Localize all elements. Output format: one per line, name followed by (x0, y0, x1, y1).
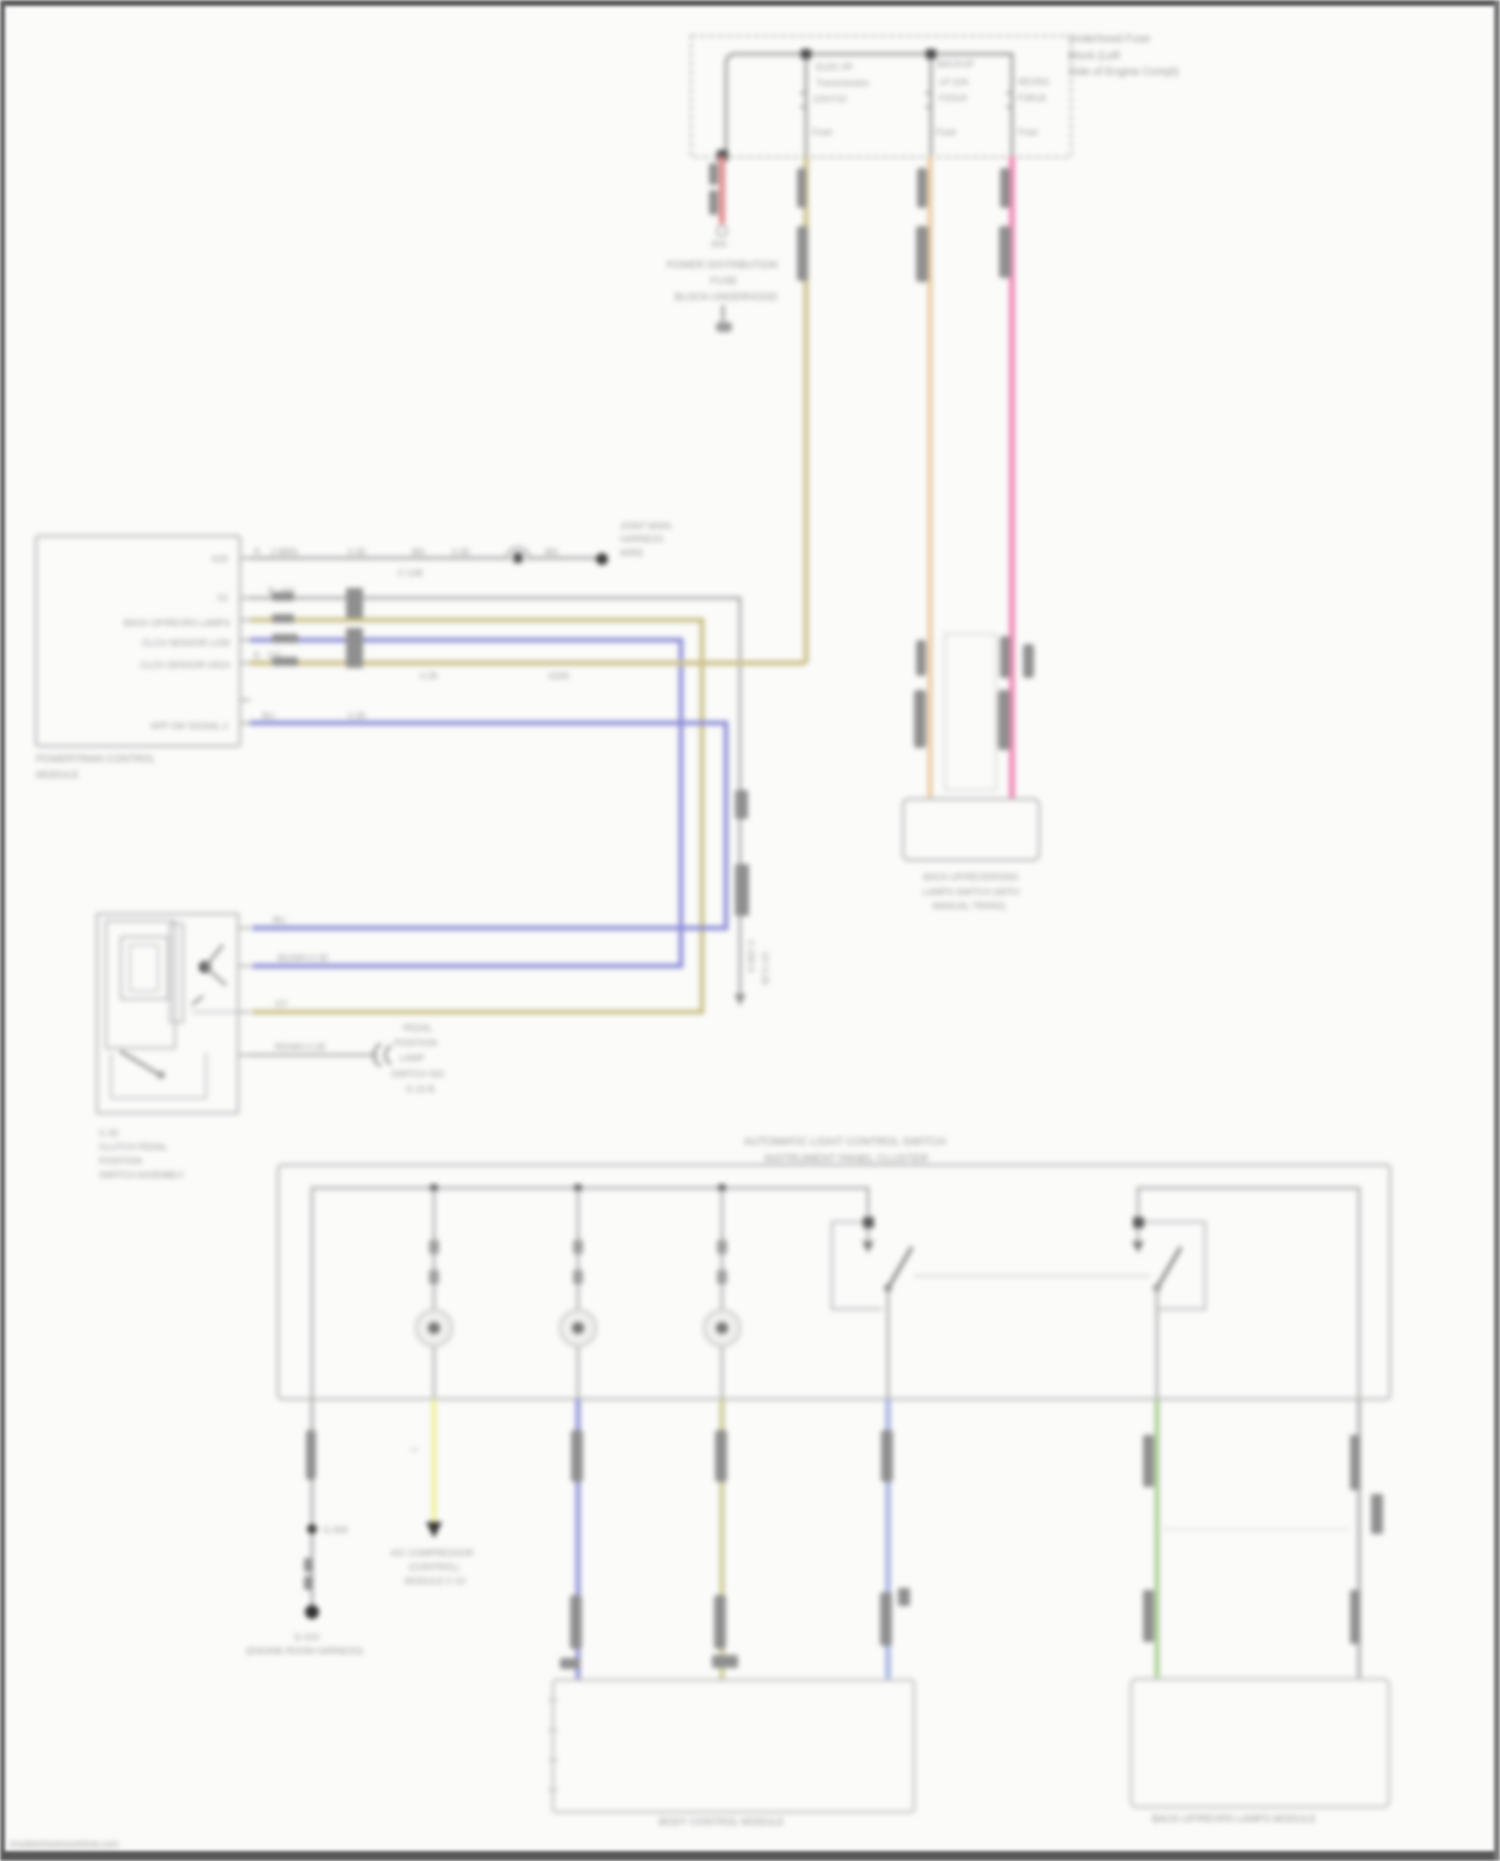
svg-text:troubleshootmyvehicle.com: troubleshootmyvehicle.com (10, 1839, 119, 1849)
svg-text:F30UA: F30UA (1018, 93, 1046, 103)
svg-text:POSITION: POSITION (99, 1156, 142, 1166)
svg-text:Block (Left: Block (Left (1068, 50, 1120, 62)
svg-text:LP 10A: LP 10A (939, 77, 968, 87)
svg-text:S205: S205 (548, 671, 569, 681)
svg-text:JOINT MAIN: JOINT MAIN (620, 521, 671, 531)
svg-text:MODULE C-10: MODULE C-10 (405, 1576, 466, 1586)
svg-text:LAMPS SWITCH (WITH: LAMPS SWITCH (WITH (923, 887, 1020, 897)
svg-text:Transmission: Transmission (816, 78, 869, 88)
svg-text:POWER DISTRIBUTION: POWER DISTRIBUTION (666, 260, 777, 271)
svg-text:BACKUP: BACKUP (937, 59, 974, 69)
svg-text:LAMP: LAMP (400, 1053, 425, 1063)
svg-text:INSTRUMENT PANEL CLUSTER: INSTRUMENT PANEL CLUSTER (764, 1153, 928, 1165)
svg-text:(ENGINE ROOM HARNESS): (ENGINE ROOM HARNESS) (246, 1646, 363, 1656)
svg-text:C-108: C-108 (398, 568, 423, 578)
svg-text:0.35: 0.35 (420, 671, 438, 681)
svg-text:FUSE: FUSE (711, 276, 738, 287)
svg-text:K20: K20 (212, 554, 228, 564)
svg-text:POWERTRAIN CONTROL: POWERTRAIN CONTROL (36, 754, 156, 765)
svg-text:CLCH SENSOR LOW: CLCH SENSOR LOW (142, 638, 231, 648)
svg-text:SWITCH SIG: SWITCH SIG (391, 1069, 445, 1079)
svg-text:C-200 A: C-200 A (746, 940, 756, 973)
svg-text:MODULE: MODULE (36, 770, 79, 781)
svg-text:POSITION: POSITION (394, 1038, 437, 1048)
svg-text:SWITCH ASSEMBLY: SWITCH ASSEMBLY (99, 1170, 184, 1180)
svg-text:F22UA: F22UA (939, 93, 967, 103)
svg-text:0.35: 0.35 (452, 547, 470, 557)
svg-text:AUTOMATIC LIGHT CONTROL SWITCH: AUTOMATIC LIGHT CONTROL SWITCH (744, 1136, 946, 1148)
svg-text:G-103: G-103 (294, 1632, 319, 1642)
svg-text:Fuse: Fuse (1018, 127, 1038, 137)
svg-text:BACK-UP/REVRS LAMPS MODULE: BACK-UP/REVRS LAMPS MODULE (1152, 1814, 1316, 1825)
svg-text:A: A (254, 546, 260, 556)
svg-text:REVRS: REVRS (1018, 77, 1049, 87)
svg-text:HARNESS: HARNESS (620, 534, 664, 544)
svg-text:(CONTROL): (CONTROL) (409, 1562, 459, 1572)
svg-text:30A: 30A (711, 239, 727, 249)
svg-text:Fuse: Fuse (812, 127, 832, 137)
svg-text:WIRE: WIRE (620, 548, 644, 558)
svg-text:Underhood Fuse: Underhood Fuse (1068, 33, 1150, 45)
svg-text:BU/WH 0.35: BU/WH 0.35 (278, 953, 328, 963)
svg-text:0.35: 0.35 (348, 711, 366, 721)
svg-text:GY: GY (275, 999, 288, 1009)
svg-text:ELEC I/P: ELEC I/P (816, 62, 853, 72)
svg-text:BLOCK-UNDERHOOD: BLOCK-UNDERHOOD (675, 292, 778, 303)
svg-text:BU: BU (273, 915, 286, 925)
svg-text:X2: X2 (217, 593, 228, 603)
svg-text:BN: BN (545, 547, 558, 557)
svg-text:CLUTCH PEDAL: CLUTCH PEDAL (99, 1142, 168, 1152)
svg-text:G-305: G-305 (323, 1525, 348, 1535)
svg-text:A/C COMPRESSOR: A/C COMPRESSOR (391, 1548, 474, 1558)
svg-text:0.35: 0.35 (348, 547, 366, 557)
svg-text:CLCH SENSOR HIGH: CLCH SENSOR HIGH (140, 660, 230, 670)
svg-text:Side of Engine Compt): Side of Engine Compt) (1068, 66, 1179, 78)
svg-text:C-30: C-30 (99, 1128, 119, 1138)
svg-text:APP SW SIGNAL 2: APP SW SIGNAL 2 (150, 721, 228, 731)
svg-text:G-10 B: G-10 B (406, 1084, 435, 1094)
svg-text:RD/WH 0.35: RD/WH 0.35 (275, 1042, 326, 1052)
svg-text:GY 0.35: GY 0.35 (760, 952, 770, 985)
svg-text:10A F10: 10A F10 (813, 94, 847, 104)
svg-text:BN: BN (412, 547, 425, 557)
svg-text:BODY CONTROL MODULE: BODY CONTROL MODULE (659, 1817, 784, 1828)
svg-text:BU: BU (262, 711, 275, 721)
svg-text:BACK-UP/REVRS LAMPS: BACK-UP/REVRS LAMPS (123, 618, 230, 628)
svg-text:Fuse: Fuse (936, 127, 956, 137)
svg-text:1: 1 (409, 1447, 419, 1452)
svg-text:MANUAL TRANS): MANUAL TRANS) (932, 901, 1005, 911)
svg-text:BACK-UP/REVERSING: BACK-UP/REVERSING (923, 872, 1019, 882)
svg-text:E: E (254, 650, 260, 660)
svg-text:2 BRN: 2 BRN (271, 547, 298, 557)
svg-text:PEDAL: PEDAL (403, 1023, 433, 1033)
